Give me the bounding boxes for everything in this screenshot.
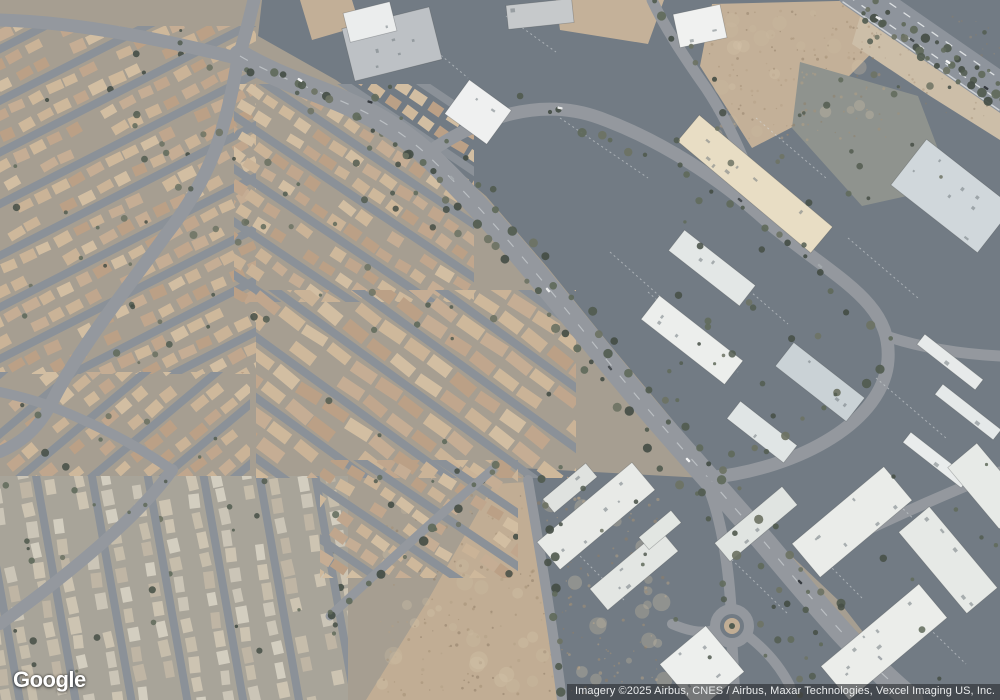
- tree: [608, 138, 613, 143]
- desert-speckle: [576, 666, 588, 678]
- tree: [696, 444, 703, 451]
- desert-speckle: [813, 109, 816, 112]
- desert-speckle: [740, 88, 742, 90]
- tree: [901, 22, 906, 27]
- map-view: Google Imagery ©2025 Airbus, CNES / Airb…: [0, 0, 1000, 700]
- desert-speckle: [563, 628, 565, 630]
- tree: [113, 349, 120, 356]
- tree: [705, 318, 712, 325]
- desert-speckle: [394, 681, 395, 682]
- desert-speckle: [471, 513, 473, 515]
- tree: [325, 397, 332, 404]
- tree: [706, 516, 711, 521]
- tree: [319, 294, 322, 297]
- tree: [151, 620, 157, 626]
- desert-speckle: [500, 625, 502, 627]
- tree: [559, 522, 563, 526]
- tree: [232, 157, 236, 161]
- desert-speckle: [731, 64, 733, 66]
- desert-speckle: [557, 517, 558, 518]
- desert-speckle: [597, 643, 599, 645]
- desert-speckle: [448, 614, 450, 616]
- tree: [484, 235, 492, 243]
- tree: [580, 486, 586, 492]
- desert-speckle: [527, 676, 538, 687]
- tree: [880, 20, 887, 27]
- desert-speckle: [847, 56, 850, 59]
- tree: [673, 617, 678, 622]
- desert-speckle: [424, 622, 427, 625]
- desert-speckle: [518, 638, 529, 649]
- desert-speckle: [961, 20, 963, 22]
- desert-speckle: [597, 554, 600, 557]
- tree: [434, 527, 438, 531]
- tree: [917, 53, 925, 61]
- tree: [624, 369, 633, 378]
- desert-speckle: [791, 11, 794, 14]
- tree: [823, 102, 830, 109]
- tree: [698, 488, 706, 496]
- desert-speckle: [780, 104, 783, 107]
- tree: [247, 68, 255, 76]
- tree: [241, 219, 248, 226]
- tree: [675, 292, 682, 299]
- desert-speckle: [444, 624, 447, 627]
- desert-speckle: [606, 649, 608, 651]
- desert-speckle: [474, 689, 477, 692]
- desert-speckle: [521, 507, 523, 509]
- desert-speckle: [885, 57, 886, 58]
- tree: [726, 200, 734, 208]
- tree: [30, 637, 37, 644]
- desert-speckle: [406, 621, 408, 623]
- desert-speckle: [853, 58, 855, 60]
- tree: [298, 81, 306, 89]
- desert-speckle: [806, 138, 809, 141]
- desert-speckle: [607, 650, 609, 652]
- desert-speckle: [566, 580, 567, 581]
- tree: [624, 148, 632, 156]
- desert-speckle: [854, 92, 857, 95]
- tree: [450, 305, 454, 309]
- tree: [721, 596, 727, 602]
- tree: [13, 164, 17, 168]
- desert-speckle: [969, 36, 972, 39]
- tree: [542, 502, 549, 509]
- desert-speckle: [632, 519, 635, 522]
- tree: [798, 113, 802, 117]
- desert-speckle: [599, 637, 601, 639]
- desert-speckle: [392, 639, 393, 640]
- desert-speckle: [581, 637, 582, 638]
- tree: [713, 362, 716, 365]
- tree: [937, 677, 941, 681]
- house-roof: [188, 493, 200, 508]
- tree: [13, 204, 20, 211]
- desert-speckle: [572, 632, 574, 634]
- tree: [419, 536, 429, 546]
- tree: [595, 330, 603, 338]
- desert-speckle: [492, 677, 494, 679]
- tree: [979, 535, 983, 539]
- desert-speckle: [769, 68, 780, 79]
- tree: [787, 636, 794, 643]
- tree: [984, 97, 993, 106]
- desert-speckle: [880, 34, 882, 36]
- desert-speckle: [975, 102, 977, 104]
- tree: [759, 246, 765, 252]
- house-roof: [90, 572, 102, 588]
- desert-speckle: [450, 601, 453, 604]
- desert-speckle: [613, 675, 615, 677]
- desert-speckle: [461, 543, 463, 545]
- desert-speckle: [467, 629, 473, 635]
- tree: [357, 116, 361, 120]
- tree: [200, 131, 206, 137]
- tree: [551, 552, 560, 561]
- tree: [819, 642, 823, 646]
- tree: [985, 463, 988, 466]
- desert-speckle: [599, 671, 603, 675]
- tree: [280, 71, 287, 78]
- desert-speckle: [490, 611, 492, 613]
- tree: [948, 86, 952, 90]
- desert-speckle: [420, 636, 422, 638]
- desert-speckle: [742, 112, 745, 115]
- tree: [954, 507, 959, 512]
- desert-speckle: [941, 78, 942, 79]
- tree: [862, 379, 871, 388]
- tree: [956, 79, 961, 84]
- house-roof: [26, 521, 39, 539]
- desert-speckle: [479, 685, 482, 688]
- desert-speckle: [846, 21, 848, 23]
- desert-speckle: [814, 54, 816, 56]
- tree: [262, 478, 268, 484]
- google-logo[interactable]: Google: [13, 667, 86, 693]
- desert-speckle: [396, 529, 399, 532]
- tree: [809, 673, 816, 680]
- tree: [764, 449, 769, 454]
- tree: [838, 604, 845, 611]
- desert-speckle: [441, 653, 443, 655]
- desert-speckle: [618, 662, 620, 664]
- tree: [967, 81, 975, 89]
- desert-speckle: [450, 645, 452, 647]
- tree: [891, 474, 895, 478]
- tree: [697, 342, 701, 346]
- desert-speckle: [803, 102, 806, 105]
- tree: [764, 654, 768, 658]
- tree: [625, 406, 634, 415]
- tree: [444, 139, 449, 144]
- tree: [442, 196, 449, 203]
- tree: [454, 230, 462, 238]
- desert-speckle: [897, 112, 900, 115]
- desert-speckle: [587, 574, 589, 576]
- tree: [603, 349, 612, 358]
- desert-speckle: [520, 495, 522, 497]
- tree: [443, 206, 450, 213]
- desert-speckle: [661, 576, 664, 579]
- desert-speckle: [529, 575, 531, 577]
- desert-speckle: [385, 647, 403, 665]
- desert-speckle: [792, 37, 794, 39]
- desert-speckle: [476, 675, 479, 678]
- tree: [804, 656, 808, 660]
- tree: [865, 7, 870, 12]
- tree: [910, 143, 914, 147]
- desert-speckle: [777, 79, 779, 81]
- desert-speckle: [780, 84, 782, 86]
- desert-speckle: [470, 651, 488, 669]
- tree: [456, 522, 461, 527]
- tree: [333, 222, 337, 226]
- tree: [750, 304, 756, 310]
- house-roof: [301, 493, 314, 508]
- tree: [674, 137, 680, 143]
- desert-speckle: [567, 652, 569, 654]
- tree: [475, 182, 481, 188]
- tree: [600, 377, 604, 381]
- desert-speckle: [400, 689, 402, 691]
- desert-speckle: [879, 113, 881, 115]
- house-roof: [112, 691, 124, 700]
- tree: [541, 252, 549, 260]
- desert-speckle: [410, 618, 420, 628]
- desert-speckle: [842, 5, 844, 7]
- tree: [752, 445, 758, 451]
- tree: [35, 412, 42, 419]
- tree: [758, 563, 765, 570]
- tree: [613, 403, 622, 412]
- house-roof: [73, 635, 84, 649]
- tree: [332, 511, 339, 518]
- tree: [800, 416, 804, 420]
- tree: [732, 530, 738, 536]
- desert-speckle: [432, 630, 433, 631]
- desert-speckle: [771, 46, 773, 48]
- desert-speckle: [605, 679, 608, 682]
- desert-speckle: [805, 73, 808, 76]
- tree: [982, 30, 987, 35]
- tree: [106, 413, 112, 419]
- desert-speckle: [516, 692, 519, 695]
- tree: [891, 34, 897, 40]
- tree: [798, 567, 803, 572]
- desert-speckle: [543, 673, 545, 675]
- tree: [79, 256, 83, 260]
- desert-speckle: [839, 137, 842, 140]
- tree: [93, 503, 96, 506]
- satellite-imagery: [0, 0, 1000, 700]
- desert-speckle: [407, 638, 410, 641]
- tree: [490, 469, 496, 475]
- tree: [719, 109, 726, 116]
- desert-speckle: [422, 598, 430, 606]
- house-roof: [53, 518, 65, 534]
- tree: [911, 578, 915, 582]
- desert-speckle: [772, 16, 787, 31]
- desert-speckle: [733, 69, 735, 71]
- desert-speckle: [727, 41, 741, 55]
- tree: [689, 44, 694, 49]
- tree: [722, 354, 726, 358]
- desert-speckle: [814, 73, 817, 76]
- desert-speckle: [546, 520, 548, 522]
- map-canvas[interactable]: [0, 0, 1000, 700]
- tree: [64, 210, 68, 214]
- tree: [861, 11, 865, 15]
- tree: [529, 238, 538, 247]
- tree: [214, 437, 218, 441]
- tree: [679, 361, 683, 365]
- tree: [132, 123, 137, 128]
- desert-speckle: [468, 681, 470, 683]
- desert-speckle: [861, 41, 862, 42]
- tree: [283, 192, 288, 197]
- desert-speckle: [847, 106, 855, 114]
- desert-speckle: [513, 643, 516, 646]
- desert-speckle: [869, 46, 871, 48]
- tree: [910, 26, 918, 34]
- tree: [437, 177, 443, 183]
- desert-speckle: [779, 10, 782, 13]
- desert-speckle: [431, 598, 433, 600]
- tree: [190, 231, 198, 239]
- desert-speckle: [472, 675, 474, 677]
- desert-speckle: [615, 554, 618, 557]
- tree: [232, 529, 235, 532]
- desert-speckle: [853, 135, 855, 137]
- tree: [828, 288, 834, 294]
- tree: [867, 38, 873, 44]
- desert-speckle: [876, 32, 877, 33]
- desert-speckle: [746, 69, 748, 71]
- tree: [729, 623, 735, 629]
- desert-speckle: [793, 78, 795, 80]
- tree: [20, 403, 24, 407]
- tree: [96, 226, 100, 230]
- desert-speckle: [376, 678, 388, 690]
- desert-speckle: [922, 88, 925, 91]
- tree: [366, 581, 372, 587]
- tree: [866, 321, 875, 330]
- tree: [788, 335, 795, 342]
- desert-speckle: [536, 649, 550, 663]
- tree: [179, 29, 182, 32]
- tree: [328, 610, 333, 615]
- tree: [492, 461, 500, 469]
- tree: [371, 327, 377, 333]
- desert-speckle: [424, 619, 425, 620]
- tree: [885, 10, 890, 15]
- tree: [666, 419, 671, 424]
- desert-speckle: [500, 578, 503, 581]
- tree: [645, 387, 652, 394]
- tree: [888, 336, 893, 341]
- tree: [675, 398, 679, 402]
- tree: [501, 255, 510, 264]
- tree: [919, 626, 926, 633]
- desert-speckle: [911, 78, 913, 80]
- desert-speckle: [656, 518, 658, 520]
- desert-speckle: [803, 76, 805, 78]
- tree: [805, 199, 812, 206]
- desert-speckle: [856, 27, 858, 29]
- desert-speckle: [753, 101, 756, 104]
- tree: [555, 663, 562, 670]
- tree: [934, 63, 940, 69]
- desert-speckle: [825, 55, 828, 58]
- desert-speckle: [751, 119, 753, 121]
- tree: [977, 88, 987, 98]
- desert-speckle: [508, 587, 510, 589]
- tree: [178, 40, 183, 45]
- tree: [451, 337, 454, 340]
- desert-speckle: [795, 14, 797, 16]
- desert-speckle: [736, 57, 739, 60]
- tree: [954, 55, 959, 60]
- desert-speckle: [655, 659, 657, 661]
- desert-speckle: [801, 123, 804, 126]
- desert-speckle: [588, 584, 591, 587]
- tree: [393, 142, 398, 147]
- desert-speckle: [568, 597, 570, 599]
- tree: [921, 34, 930, 43]
- desert-speckle: [878, 46, 880, 48]
- tree: [573, 344, 581, 352]
- desert-speckle: [537, 501, 541, 505]
- desert-speckle: [626, 658, 632, 664]
- tree: [307, 108, 314, 115]
- tree: [549, 613, 557, 621]
- tree: [871, 71, 878, 78]
- desert-speckle: [740, 104, 742, 106]
- house-roof: [240, 627, 251, 642]
- desert-speckle: [613, 665, 615, 667]
- desert-speckle: [796, 41, 805, 50]
- tree: [364, 264, 371, 271]
- tree: [325, 95, 333, 103]
- tree: [524, 279, 529, 284]
- desert-speckle: [751, 90, 754, 93]
- desert-speckle: [580, 567, 582, 569]
- desert-speckle: [763, 108, 765, 110]
- tree: [569, 295, 575, 301]
- tree: [776, 231, 782, 237]
- tree: [549, 282, 557, 290]
- tree: [103, 264, 107, 268]
- tree: [589, 360, 594, 365]
- house-roof: [210, 612, 221, 629]
- tree: [760, 381, 766, 387]
- tree: [834, 393, 838, 397]
- desert-speckle: [502, 693, 504, 695]
- desert-speckle: [499, 667, 514, 682]
- desert-speckle: [843, 111, 845, 113]
- tree: [505, 570, 512, 577]
- tree: [472, 482, 477, 487]
- tree: [548, 110, 552, 114]
- tree: [149, 586, 156, 593]
- tree: [737, 486, 741, 490]
- desert-speckle: [807, 124, 809, 126]
- desert-speckle: [801, 71, 803, 73]
- tree: [581, 366, 589, 374]
- tree: [545, 525, 554, 534]
- tree: [717, 475, 726, 484]
